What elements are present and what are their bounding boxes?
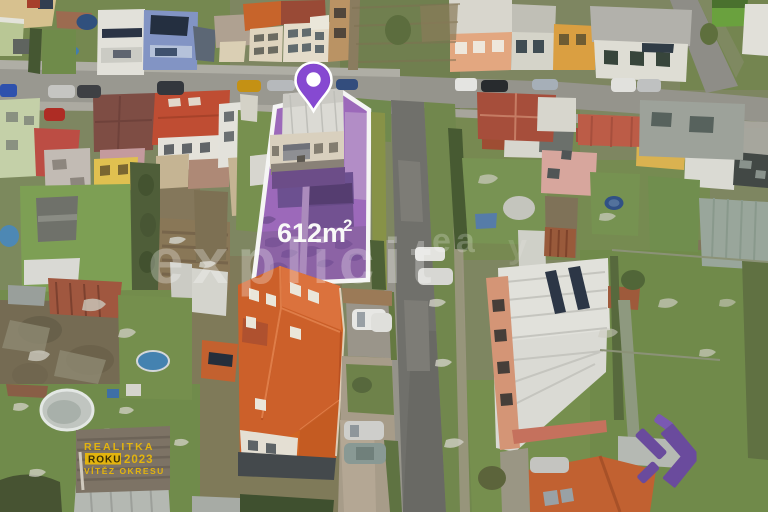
svg-text:ea: ea xyxy=(432,222,480,260)
svg-text:VÍTĚZ OKRESU: VÍTĚZ OKRESU xyxy=(84,465,165,476)
svg-text:explicit: explicit xyxy=(148,225,441,297)
svg-text:REALITKA: REALITKA xyxy=(84,441,155,453)
svg-text:y: y xyxy=(508,228,527,266)
svg-text:2023: 2023 xyxy=(124,454,154,466)
svg-text:ROKU: ROKU xyxy=(88,455,121,466)
